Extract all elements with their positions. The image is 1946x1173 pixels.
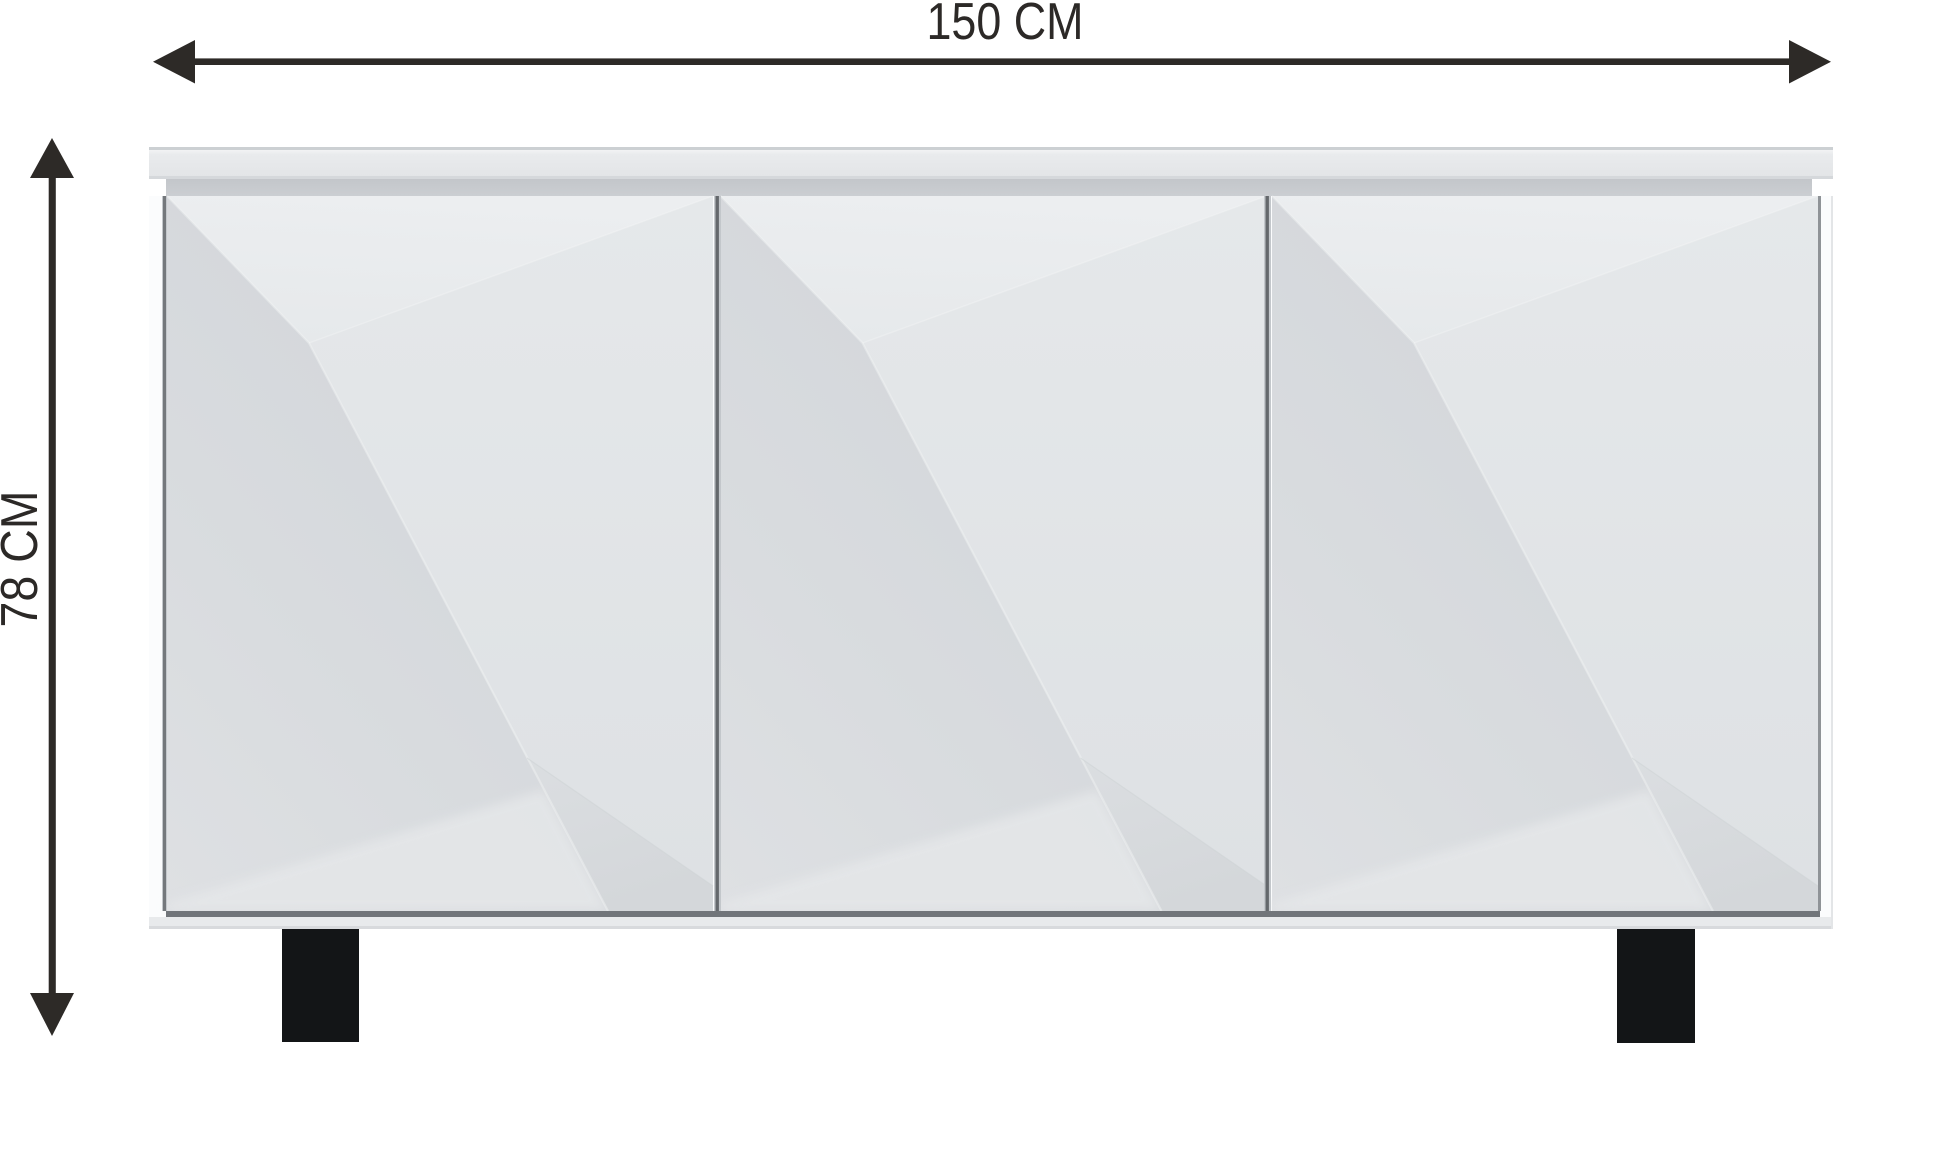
svg-text:150 CM: 150 CM xyxy=(927,0,1084,51)
svg-text:78 CM: 78 CM xyxy=(0,491,49,628)
